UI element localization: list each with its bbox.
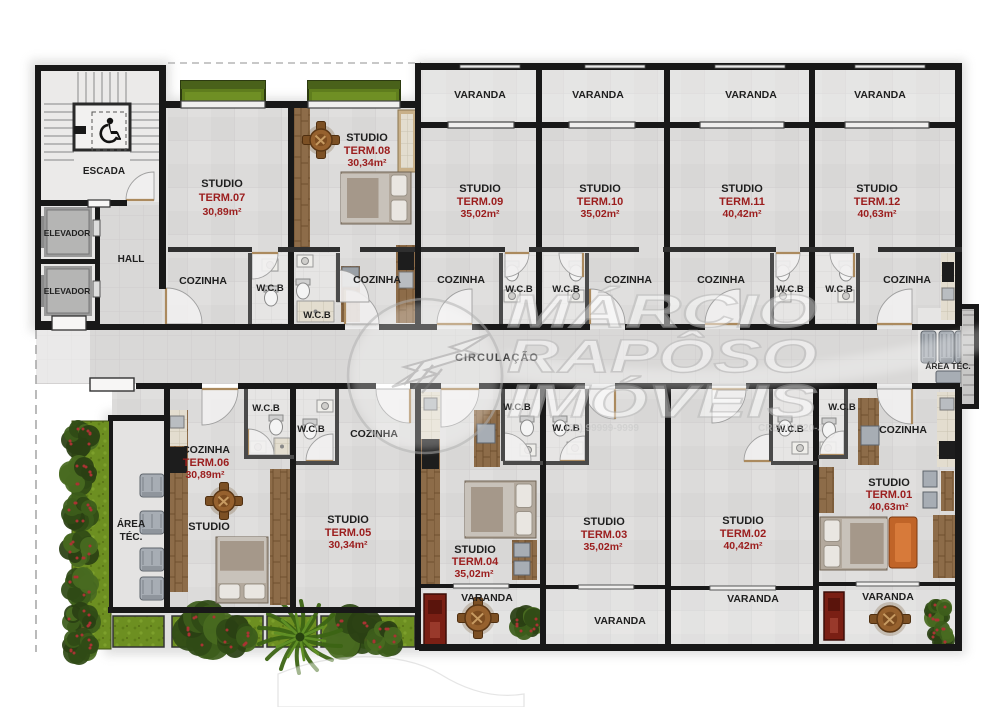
svg-text:TERM.01: TERM.01 bbox=[866, 489, 912, 501]
svg-text:STUDIO: STUDIO bbox=[579, 183, 621, 195]
svg-text:STUDIO: STUDIO bbox=[459, 183, 501, 195]
svg-text:TERM.07: TERM.07 bbox=[199, 192, 245, 204]
svg-text:VARANDA: VARANDA bbox=[594, 615, 646, 627]
svg-text:COZINHA: COZINHA bbox=[179, 275, 227, 287]
svg-text:W.C.B: W.C.B bbox=[297, 424, 325, 435]
svg-text:STUDIO: STUDIO bbox=[721, 183, 763, 195]
svg-text:VARANDA: VARANDA bbox=[727, 593, 779, 605]
svg-text:30,34m²: 30,34m² bbox=[328, 539, 368, 551]
svg-text:TÉC.: TÉC. bbox=[120, 530, 143, 543]
svg-text:STUDIO: STUDIO bbox=[188, 521, 230, 533]
svg-text:W.C.B: W.C.B bbox=[256, 283, 284, 294]
svg-text:ESCADA: ESCADA bbox=[83, 166, 125, 177]
svg-text:STUDIO: STUDIO bbox=[868, 477, 910, 489]
svg-text:STUDIO: STUDIO bbox=[583, 516, 625, 528]
svg-text:TERM.08: TERM.08 bbox=[344, 145, 390, 157]
svg-text:40,63m²: 40,63m² bbox=[857, 208, 897, 220]
svg-text:VARANDA: VARANDA bbox=[461, 592, 513, 604]
svg-text:40,42m²: 40,42m² bbox=[722, 208, 762, 220]
svg-text:W.C.B: W.C.B bbox=[252, 403, 280, 414]
svg-text:TERM.02: TERM.02 bbox=[720, 528, 766, 540]
svg-text:W.C.B: W.C.B bbox=[825, 284, 853, 295]
svg-text:30,89m²: 30,89m² bbox=[185, 469, 225, 481]
svg-text:VARANDA: VARANDA bbox=[454, 89, 506, 101]
svg-text:VARANDA: VARANDA bbox=[862, 591, 914, 603]
svg-text:TERM.10: TERM.10 bbox=[577, 196, 623, 208]
svg-text:W.C.B: W.C.B bbox=[303, 310, 331, 321]
svg-text:STUDIO: STUDIO bbox=[722, 515, 764, 527]
svg-text:STUDIO: STUDIO bbox=[346, 132, 388, 144]
svg-text:CRECI 1520-J: CRECI 1520-J bbox=[758, 423, 823, 434]
svg-text:TERM.05: TERM.05 bbox=[325, 527, 371, 539]
svg-text:IMÓVEIS: IMÓVEIS bbox=[507, 375, 817, 427]
svg-text:W.C.B: W.C.B bbox=[828, 402, 856, 413]
svg-text:35,02m²: 35,02m² bbox=[583, 541, 623, 553]
svg-text:TERM.12: TERM.12 bbox=[854, 196, 900, 208]
svg-text:(82) 99999-9999: (82) 99999-9999 bbox=[565, 423, 639, 434]
svg-text:VARANDA: VARANDA bbox=[725, 89, 777, 101]
svg-text:40,63m²: 40,63m² bbox=[869, 501, 909, 513]
svg-text:STUDIO: STUDIO bbox=[201, 178, 243, 190]
svg-text:ELEVADOR: ELEVADOR bbox=[44, 228, 91, 238]
svg-text:COZINHA: COZINHA bbox=[353, 274, 401, 286]
svg-text:TERM.06: TERM.06 bbox=[183, 457, 229, 469]
svg-text:ELEVADOR: ELEVADOR bbox=[44, 286, 91, 296]
svg-text:COZINHA: COZINHA bbox=[879, 424, 927, 436]
svg-text:30,89m²: 30,89m² bbox=[202, 206, 242, 218]
svg-text:STUDIO: STUDIO bbox=[327, 514, 369, 526]
svg-text:35,02m²: 35,02m² bbox=[460, 208, 500, 220]
svg-text:40,42m²: 40,42m² bbox=[723, 540, 763, 552]
svg-text:COZINHA: COZINHA bbox=[437, 274, 485, 286]
svg-text:VARANDA: VARANDA bbox=[572, 89, 624, 101]
svg-text:30,34m²: 30,34m² bbox=[347, 157, 387, 169]
svg-text:STUDIO: STUDIO bbox=[856, 183, 898, 195]
svg-text:TERM.03: TERM.03 bbox=[581, 529, 627, 541]
svg-text:COZINHA: COZINHA bbox=[182, 444, 230, 456]
svg-text:COZINHA: COZINHA bbox=[883, 274, 931, 286]
svg-text:HALL: HALL bbox=[118, 254, 145, 265]
svg-text:TERM.09: TERM.09 bbox=[457, 196, 503, 208]
svg-text:35,02m²: 35,02m² bbox=[454, 568, 494, 580]
svg-text:35,02m²: 35,02m² bbox=[580, 208, 620, 220]
svg-text:ÁREA: ÁREA bbox=[117, 517, 145, 530]
svg-text:TERM.04: TERM.04 bbox=[452, 556, 499, 568]
svg-text:TERM.11: TERM.11 bbox=[719, 196, 765, 208]
svg-text:STUDIO: STUDIO bbox=[454, 544, 496, 556]
svg-text:VARANDA: VARANDA bbox=[854, 89, 906, 101]
